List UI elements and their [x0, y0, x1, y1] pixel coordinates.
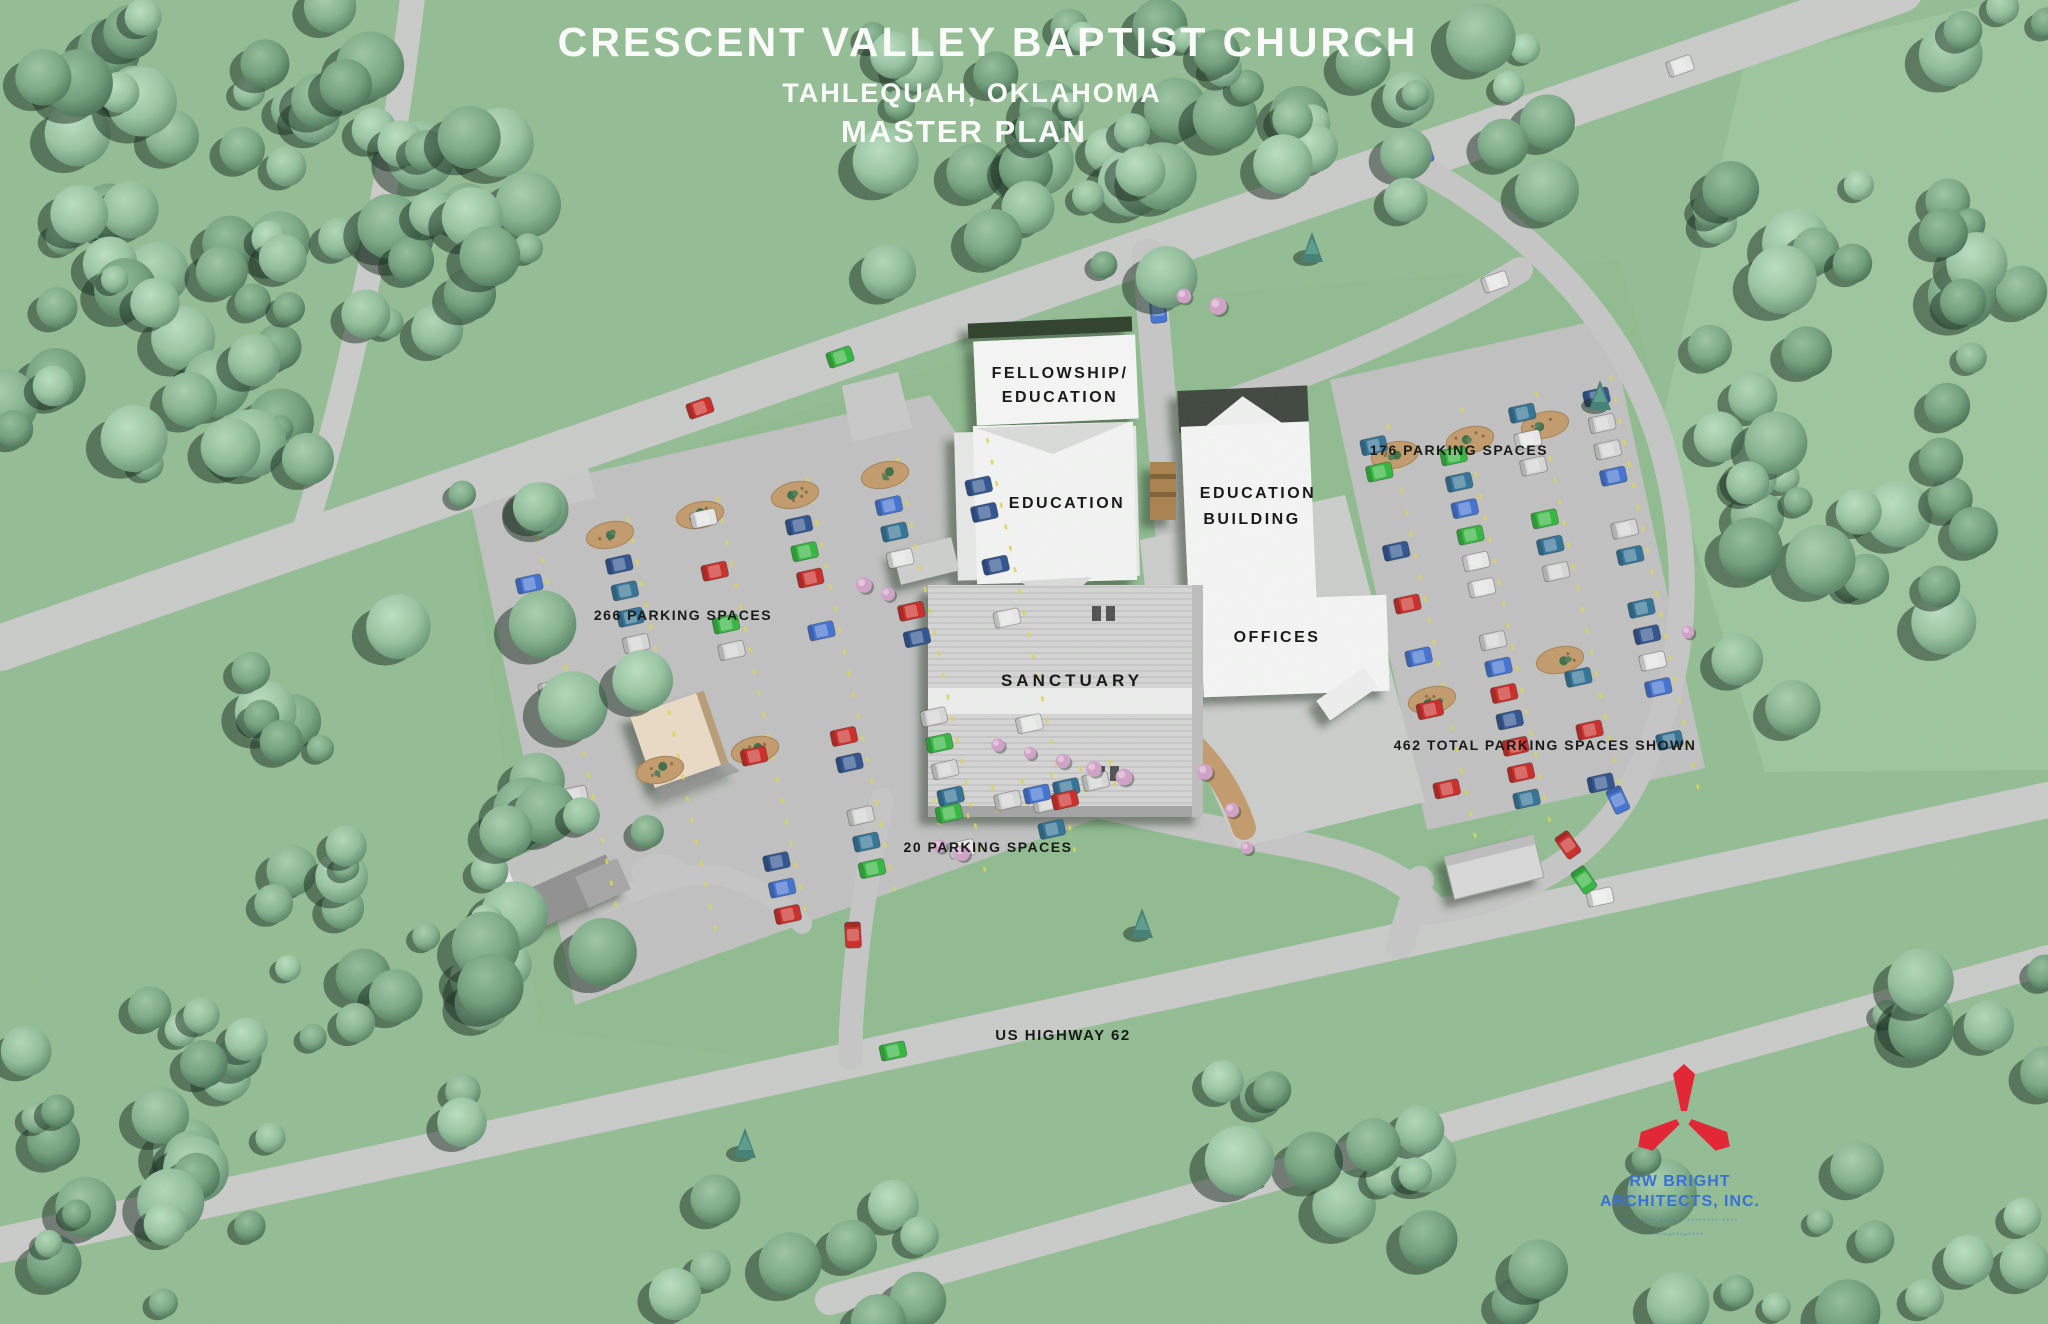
- label-education-building-2: BUILDING: [1203, 511, 1300, 528]
- label-south-parking: 20 PARKING SPACES: [904, 839, 1073, 855]
- label-east-parking: 176 PARKING SPACES: [1370, 442, 1548, 458]
- label-offices: OFFICES: [1234, 629, 1321, 646]
- label-west-parking: 266 PARKING SPACES: [594, 607, 772, 623]
- logo-firm-name-1: RW BRIGHT: [1629, 1173, 1730, 1190]
- label-total-parking: 462 TOTAL PARKING SPACES SHOWN: [1394, 737, 1697, 753]
- site-plan-map: CRESCENT VALLEY BAPTIST CHURCH TAHLEQUAH…: [0, 0, 2048, 1324]
- logo-phone: ···‑···‑····: [1656, 1229, 1704, 1239]
- logo-firm-name-2: ARCHITECTS, INC.: [1600, 1193, 1760, 1210]
- logo-address: ··· ····· ···· · ········ ····: [1621, 1215, 1738, 1225]
- bell-tower: [1150, 462, 1176, 520]
- drive-exit-south: [1400, 880, 1420, 945]
- label-education: EDUCATION: [1009, 495, 1125, 512]
- car-symbol: [844, 922, 861, 949]
- label-sanctuary: SANCTUARY: [1001, 671, 1143, 690]
- label-education-building-1: EDUCATION: [1200, 485, 1316, 502]
- house-turnaround: [632, 854, 688, 890]
- label-fellowship-2: EDUCATION: [1002, 389, 1118, 406]
- page-subtitle: TAHLEQUAH, OKLAHOMA: [782, 78, 1161, 108]
- label-us-highway: US HIGHWAY 62: [995, 1027, 1130, 1044]
- site-plan-page: CRESCENT VALLEY BAPTIST CHURCH TAHLEQUAH…: [0, 0, 2048, 1324]
- label-fellowship-1: FELLOWSHIP/: [992, 365, 1129, 382]
- page-subtitle-2: MASTER PLAN: [841, 114, 1087, 149]
- page-title: CRESCENT VALLEY BAPTIST CHURCH: [558, 19, 1419, 65]
